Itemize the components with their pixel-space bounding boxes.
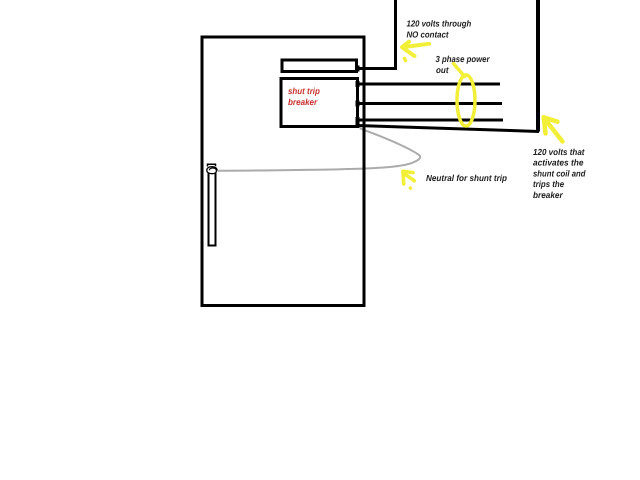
svg-text:Neutral for shunt trip: Neutral for shunt trip (426, 173, 508, 183)
svg-text:trips the: trips the (533, 179, 564, 189)
svg-text:breaker: breaker (533, 190, 563, 200)
svg-text:NO contact: NO contact (407, 29, 450, 39)
svg-text:activates the: activates the (533, 158, 584, 168)
svg-text:shut trip: shut trip (288, 86, 320, 96)
svg-text:breaker: breaker (288, 97, 318, 107)
svg-text:3 phase power: 3 phase power (436, 54, 490, 64)
svg-text:out: out (436, 65, 449, 75)
svg-text:shunt coil and: shunt coil and (533, 168, 586, 178)
svg-text:120 volts through: 120 volts through (407, 19, 472, 29)
svg-text:120 volts that: 120 volts that (533, 147, 585, 157)
